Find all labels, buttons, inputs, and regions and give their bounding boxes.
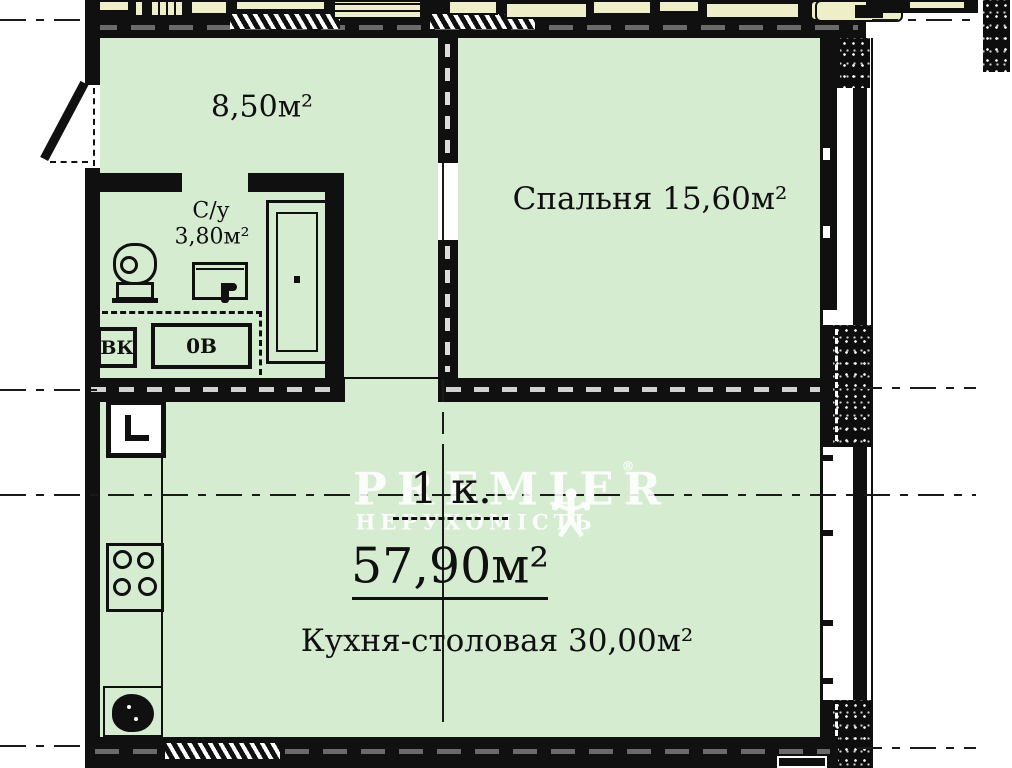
neighbor-item [235,0,326,11]
window-mullion-tick [823,678,833,684]
sink-dot [127,705,131,709]
shaft-boundary-dashed-v [259,311,262,375]
stove-burner [137,552,154,569]
watermark-person-logo-icon [552,488,590,538]
duct-hook-icon [125,415,149,441]
axis-line-bottom-left [0,745,87,747]
wall-mid-horizontal-left [85,378,345,402]
axis-line-mid-right [856,387,976,389]
passage-threshold-line [344,377,443,379]
shaft-label-ov: 0В [186,334,217,358]
pier-middle-right [833,325,871,447]
floor-plan: ВК 0В [0,0,1012,768]
washbasin-inner-line [196,268,244,270]
kitchen-window-edge-line [820,447,823,700]
axis-line-vertical-dashed [442,380,444,462]
shaft-box-ov: 0В [151,323,252,369]
neighbor-opening-below [777,756,827,768]
neighbor-item [98,0,130,12]
neighbor-item [134,0,144,17]
stove [106,543,164,612]
bathtub-drain-dot [294,276,300,283]
wall-mid-horizontal-right [438,378,840,402]
bedroom-label: Спальня 15,60м² [513,181,788,217]
axis-line-top-left [0,19,87,21]
wall-right-top [820,38,840,88]
wall-core-dashes [91,387,339,392]
wall-core-dashes [445,44,450,157]
wall-middle-vertical-upper [438,38,458,163]
window-notch [823,226,830,238]
wall-top [85,0,866,38]
apartment-type-underline [393,517,508,520]
axis-line-vertical-door-gap [442,163,444,240]
toilet-foot [112,298,158,303]
kitchen-label: Кухня-столовая 30,00м² [301,623,694,659]
neighbor-item [150,0,185,17]
bedroom-window-frame-bar [823,88,837,310]
total-area-underline [352,597,548,600]
watermark-reg-mark: ® [622,460,635,475]
wall-bottom [85,737,838,768]
washbasin-tap-spout [221,283,237,291]
balcony-outer-line [871,38,873,768]
apartment-type-label: 1 к. [410,464,492,514]
neighbor-item [705,2,800,19]
neighbor-item [908,0,966,10]
axis-line-top-right [872,19,980,21]
bathroom-name-label: С/у [192,199,229,224]
entry-door-leaf [40,81,88,161]
wall-core-dashes [445,246,450,372]
axis-line-mid-left [0,389,97,391]
entry-door-swing-dashed [93,88,95,166]
pier-bottom-right [833,700,871,768]
stove-burner [113,550,132,569]
sink-dot [134,717,138,721]
wall-top-hatch-1 [230,14,340,29]
neighbor-item [658,0,700,13]
neighbor-item [592,0,652,15]
kitchen-sink-bowl [112,694,154,732]
window-mullion-tick [823,530,833,536]
hallway-area-label: 8,50м² [211,90,313,125]
vent-duct-box [106,400,166,458]
stove-burner [138,577,157,596]
toilet-bowl-icon [120,256,138,274]
wall-bathroom-top-left [98,173,182,192]
window-notch [823,148,830,160]
neighbor-item [333,0,422,19]
balcony-glazing-lower [853,447,867,700]
stove-burner [113,578,131,596]
wall-bottom-hatch [165,743,280,759]
balcony-glazing-upper [853,88,867,325]
axis-line-bottom-right [856,747,976,749]
pier-dashed-edge [835,329,838,441]
bathroom-area-label: 3,80м² [175,225,250,250]
neighbor-item [190,0,228,15]
window-mullion-tick [823,620,833,626]
neighbor-item [448,0,498,15]
neighbor-item [505,2,588,19]
window-mullion-tick [823,455,833,461]
shaft-boundary-dashed-h [102,311,262,314]
wall-core-dashes [446,387,832,392]
shaft-label-vk: ВК [100,337,133,359]
pier-top-right [840,38,870,88]
pier-top-far-right [983,0,1010,72]
passage-hallway-kitchen [344,378,438,402]
shaft-box-vk: ВК [97,327,137,368]
kitchen-sink-box [103,686,163,737]
wall-middle-vertical-lower [438,240,458,378]
total-area-label: 57,90м² [351,538,549,595]
entry-door-swing-dashed-foot [50,161,88,163]
